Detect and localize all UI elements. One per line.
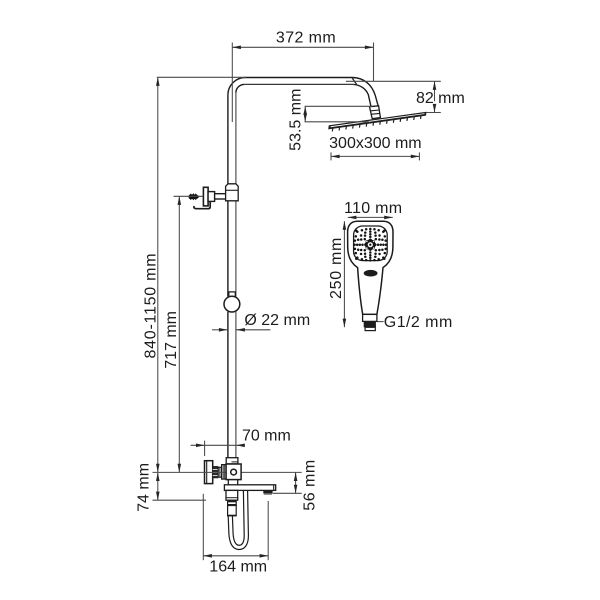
svg-text:110 mm: 110 mm	[344, 200, 402, 217]
svg-text:840-1150 mm: 840-1150 mm	[142, 253, 159, 359]
svg-text:70 mm: 70 mm	[242, 427, 291, 444]
svg-text:Ø 22 mm: Ø 22 mm	[244, 312, 310, 329]
svg-text:56 mm: 56 mm	[301, 459, 318, 510]
svg-text:G1/2 mm: G1/2 mm	[384, 314, 453, 331]
svg-text:372 mm: 372 mm	[276, 30, 336, 47]
svg-text:300x300 mm: 300x300 mm	[329, 135, 422, 152]
svg-text:53.5 mm: 53.5 mm	[288, 89, 305, 151]
svg-text:250 mm: 250 mm	[328, 237, 345, 299]
svg-text:74 mm: 74 mm	[135, 463, 152, 512]
svg-text:164 mm: 164 mm	[209, 558, 267, 575]
svg-text:717 mm: 717 mm	[163, 311, 180, 369]
svg-text:82 mm: 82 mm	[416, 90, 465, 107]
